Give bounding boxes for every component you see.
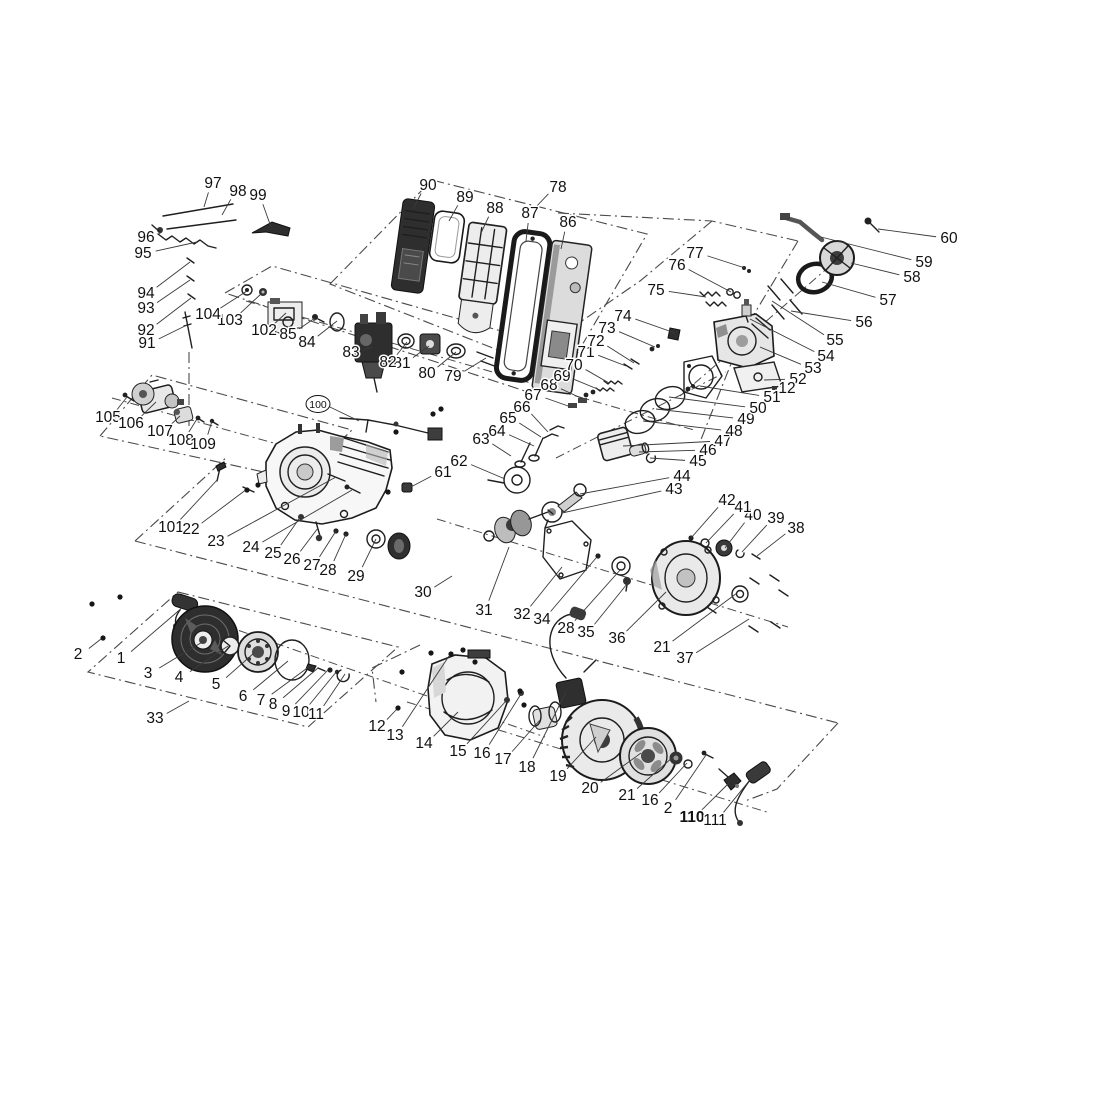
bolt-dot xyxy=(448,651,453,656)
leader-64 xyxy=(509,435,534,446)
leader-28 xyxy=(334,534,346,561)
leader-34 xyxy=(551,558,596,612)
bolt-dot xyxy=(438,406,443,411)
exploded-parts-diagram: 1234567891011331213141516171819202116211… xyxy=(0,0,1119,1119)
callout-61: 61 xyxy=(434,464,451,481)
leader-9 xyxy=(295,670,328,704)
callout-80: 80 xyxy=(418,365,436,382)
callout-8: 8 xyxy=(269,696,278,713)
callout-24: 24 xyxy=(242,539,260,556)
callout-42: 42 xyxy=(718,492,735,509)
part-cam-follower-62 xyxy=(488,467,530,493)
part-starter-pulley-20 xyxy=(620,728,676,784)
leader-2 xyxy=(89,639,101,649)
part-carburetor-83 xyxy=(355,312,392,392)
part-crankcase-cover-36 xyxy=(650,541,720,615)
leader-36 xyxy=(626,592,666,631)
callout-104: 104 xyxy=(195,306,221,323)
leader-110 xyxy=(702,783,729,810)
callout-75: 75 xyxy=(647,282,664,299)
callout-89: 89 xyxy=(456,189,473,206)
part-connecting-rod-43-44 xyxy=(542,484,586,528)
leader-77 xyxy=(707,256,745,268)
callout-3: 3 xyxy=(144,665,153,682)
leader-25 xyxy=(281,516,301,545)
bolt-dot xyxy=(517,688,522,693)
leader-67 xyxy=(545,398,571,407)
boundary-bottom-band-right-edge xyxy=(745,723,838,801)
leader-74 xyxy=(635,319,675,333)
part-oil-dipstick-101 xyxy=(216,462,226,481)
leader-98 xyxy=(222,199,231,215)
callout-92: 92 xyxy=(137,322,154,339)
part-breather-tube-59 xyxy=(780,213,822,240)
callout-55: 55 xyxy=(826,332,843,349)
leader-28 xyxy=(575,569,621,621)
leader-42 xyxy=(691,507,718,538)
part-bolts-108-109 xyxy=(196,416,218,425)
callout-37: 37 xyxy=(676,650,693,667)
leader-12 xyxy=(387,709,397,720)
part-bolt-2 xyxy=(702,751,713,758)
part-starter-motor-106 xyxy=(132,380,184,414)
callout-11: 11 xyxy=(308,706,324,723)
callout-101: 101 xyxy=(158,519,184,536)
callout-18: 18 xyxy=(518,759,535,776)
callout-76: 76 xyxy=(668,257,685,274)
leader-10 xyxy=(310,671,337,704)
leader-32 xyxy=(530,567,562,606)
part-bits-9-10-11 xyxy=(327,667,349,681)
leader-76 xyxy=(689,269,731,292)
callout-97: 97 xyxy=(204,175,221,192)
part-bearing-seal-28 xyxy=(612,557,630,575)
callout-36: 36 xyxy=(608,630,625,647)
callout-33: 33 xyxy=(146,710,163,727)
leader-33 xyxy=(167,701,189,714)
callout-25: 25 xyxy=(264,545,281,562)
callout-59: 59 xyxy=(915,254,932,271)
callout-95: 95 xyxy=(134,245,151,262)
leader-80 xyxy=(438,352,456,367)
part-bits-27-28 xyxy=(333,528,348,536)
part-studs-79 xyxy=(477,352,497,367)
part-gasket-82 xyxy=(398,334,414,348)
callout-2: 2 xyxy=(664,800,673,817)
diagram-canvas: 1234567891011331213141516171819202116211… xyxy=(0,0,1119,1119)
part-bolt-60 xyxy=(865,218,880,233)
callout-34: 34 xyxy=(533,611,551,628)
callout-41: 41 xyxy=(734,499,751,516)
bolt-dot xyxy=(100,635,105,640)
bolt-dot xyxy=(430,411,435,416)
callout-14: 14 xyxy=(415,735,433,752)
parts-layer xyxy=(123,198,879,826)
callout-16: 16 xyxy=(473,745,490,762)
part-air-filter-element xyxy=(429,210,466,264)
leader-37 xyxy=(696,619,749,653)
callout-102: 102 xyxy=(251,322,277,339)
bolt-dot xyxy=(460,647,465,652)
callout-106: 106 xyxy=(118,415,144,432)
callout-99: 99 xyxy=(249,187,266,204)
leader-48 xyxy=(643,421,721,430)
callout-21: 21 xyxy=(653,639,670,656)
callout-57: 57 xyxy=(879,292,896,309)
leader-71 xyxy=(598,355,626,366)
leader-11 xyxy=(324,674,345,706)
leader-61 xyxy=(409,476,431,488)
part-crankshaft-31 xyxy=(484,508,553,546)
callout-100: 100 xyxy=(309,399,327,411)
callout-90: 90 xyxy=(419,177,437,194)
bolt-dot xyxy=(385,489,390,494)
part-stop-switch-110 xyxy=(719,769,741,790)
callout-15: 15 xyxy=(449,743,466,760)
bolt-dot xyxy=(428,650,433,655)
callout-28: 28 xyxy=(557,620,574,637)
leader-35 xyxy=(594,584,627,624)
callout-54: 54 xyxy=(817,348,835,365)
part-starter-cup-17 xyxy=(529,702,561,730)
part-governor-rod xyxy=(163,204,236,229)
leader-63 xyxy=(492,444,511,456)
callout-35: 35 xyxy=(577,624,594,641)
leader-101 xyxy=(180,479,218,520)
part-solenoid-107 xyxy=(174,406,194,424)
callout-20: 20 xyxy=(581,780,599,797)
part-case-gasket-32 xyxy=(543,521,591,579)
callout-74: 74 xyxy=(614,308,632,325)
bolt-dot xyxy=(393,429,398,434)
callout-78: 78 xyxy=(549,179,566,196)
part-starter-pulley-5 xyxy=(238,632,278,672)
callout-19: 19 xyxy=(549,768,566,785)
part-piston-47 xyxy=(597,427,633,462)
callout-83: 83 xyxy=(342,344,359,361)
leader-44 xyxy=(580,478,669,494)
leader-46 xyxy=(639,450,695,452)
callout-86: 86 xyxy=(559,214,576,231)
callout-96: 96 xyxy=(137,229,154,246)
part-retainers-76 xyxy=(727,289,740,298)
part-governor-linkage-100 xyxy=(340,418,442,440)
leader-60 xyxy=(878,229,936,237)
leader-66 xyxy=(531,414,548,432)
leader-70 xyxy=(586,370,609,383)
callout-56: 56 xyxy=(855,314,872,331)
callout-84: 84 xyxy=(298,334,316,351)
part-washer-16 xyxy=(684,760,692,768)
leader-31 xyxy=(489,547,509,601)
leader-22 xyxy=(202,489,247,523)
callout-23: 23 xyxy=(207,533,224,550)
part-air-filter-cover xyxy=(391,198,435,294)
callout-93: 93 xyxy=(137,300,154,317)
part-valve-cover-58 xyxy=(820,241,854,275)
callout-21: 21 xyxy=(618,787,635,804)
callout-62: 62 xyxy=(450,453,467,470)
part-gasket-84 xyxy=(330,313,344,331)
part-dowel-34 xyxy=(595,553,600,558)
leader-65 xyxy=(519,423,541,437)
leader-104 xyxy=(219,291,247,309)
boundary-head-box-top xyxy=(558,213,798,241)
bolt-dot xyxy=(472,659,477,664)
callout-31: 31 xyxy=(475,602,492,619)
part-pawls-7-8 xyxy=(306,664,325,672)
callout-63: 63 xyxy=(472,431,489,448)
callout-22: 22 xyxy=(182,521,199,538)
bolt-dot xyxy=(117,594,122,599)
part-fan-cover-14 xyxy=(428,650,508,740)
leader-95 xyxy=(156,242,197,251)
bolt-dot xyxy=(244,487,249,492)
part-oil-seal-37 xyxy=(732,586,748,602)
leader-97 xyxy=(204,192,208,207)
part-throttle-lever xyxy=(252,222,290,236)
leader-55 xyxy=(772,301,824,335)
leader-57 xyxy=(822,282,875,297)
callout-13: 13 xyxy=(386,727,403,744)
callout-5: 5 xyxy=(212,676,221,693)
callout-98: 98 xyxy=(229,183,246,200)
callout-2: 2 xyxy=(74,646,83,663)
callout-105: 105 xyxy=(95,409,121,426)
leader-91 xyxy=(159,325,187,339)
leader-58 xyxy=(851,263,899,275)
leader-27 xyxy=(319,531,336,557)
leader-69 xyxy=(574,379,600,390)
leader-26 xyxy=(300,528,318,551)
bolt-dot xyxy=(395,705,400,710)
callout-110: 110 xyxy=(679,809,704,826)
callout-88: 88 xyxy=(486,200,503,217)
leader-103 xyxy=(240,293,262,314)
leader-29 xyxy=(362,539,376,567)
leader-39 xyxy=(742,525,767,552)
part-rocker-arms-65-66 xyxy=(544,426,564,438)
callout-79: 79 xyxy=(444,368,461,385)
part-valve-springs-75 xyxy=(700,292,726,306)
part-friction-ring-6 xyxy=(275,640,309,680)
callout-16: 16 xyxy=(641,792,658,809)
callout-6: 6 xyxy=(239,688,248,705)
leader-41 xyxy=(706,514,734,543)
part-head-bolts-55-56 xyxy=(768,279,802,319)
boundary-fan-band-left-edge xyxy=(372,645,420,702)
callout-12: 12 xyxy=(778,380,795,397)
callout-32: 32 xyxy=(513,606,530,623)
callout-60: 60 xyxy=(940,230,958,247)
part-gasket-80 xyxy=(447,344,465,358)
callout-28: 28 xyxy=(319,562,336,579)
callout-7: 7 xyxy=(257,692,266,709)
callout-111: 111 xyxy=(703,812,727,829)
part-spark-plug-cap-111 xyxy=(735,760,772,826)
callout-94: 94 xyxy=(137,285,155,302)
bolt-dot xyxy=(255,482,260,487)
bolt-dot xyxy=(89,601,94,606)
part-cylinder-head-53 xyxy=(714,314,774,368)
callout-39: 39 xyxy=(767,510,784,527)
callout-58: 58 xyxy=(903,269,920,286)
callout-73: 73 xyxy=(598,320,615,337)
leader-92 xyxy=(157,298,191,324)
callout-87: 87 xyxy=(521,205,538,222)
callout-4: 4 xyxy=(175,669,184,686)
leader-99 xyxy=(263,204,271,227)
callout-67: 67 xyxy=(524,387,541,404)
callout-77: 77 xyxy=(686,245,703,262)
callout-103: 103 xyxy=(217,312,243,329)
leader-62 xyxy=(471,465,505,479)
part-ratchet-4 xyxy=(221,637,239,655)
part-pins-71-74 xyxy=(624,328,680,369)
bolt-dot xyxy=(399,669,404,674)
leader-73 xyxy=(619,332,655,347)
part-oil-filler-26 xyxy=(316,522,322,541)
callout-1: 1 xyxy=(117,650,126,667)
bolt-dot xyxy=(521,702,526,707)
callout-85: 85 xyxy=(279,326,296,343)
part-valves-63-64 xyxy=(515,438,543,467)
callout-29: 29 xyxy=(347,568,364,585)
callout-26: 26 xyxy=(283,551,300,568)
leader-40 xyxy=(725,523,745,548)
callout-27: 27 xyxy=(303,557,320,574)
leader-47 xyxy=(623,441,710,446)
leader-38 xyxy=(757,534,785,556)
leader-105 xyxy=(117,397,127,410)
leader-30 xyxy=(434,576,452,587)
callout-9: 9 xyxy=(282,703,291,720)
callout-44: 44 xyxy=(673,468,691,485)
callout-30: 30 xyxy=(414,584,432,601)
leader-109 xyxy=(208,421,212,435)
callout-17: 17 xyxy=(494,751,511,768)
callout-12: 12 xyxy=(368,718,385,735)
callout-109: 109 xyxy=(190,436,216,453)
callout-38: 38 xyxy=(787,520,804,537)
part-insulator-81 xyxy=(420,334,440,354)
part-breather-plate-52 xyxy=(734,362,782,392)
callout-82: 82 xyxy=(379,354,396,371)
